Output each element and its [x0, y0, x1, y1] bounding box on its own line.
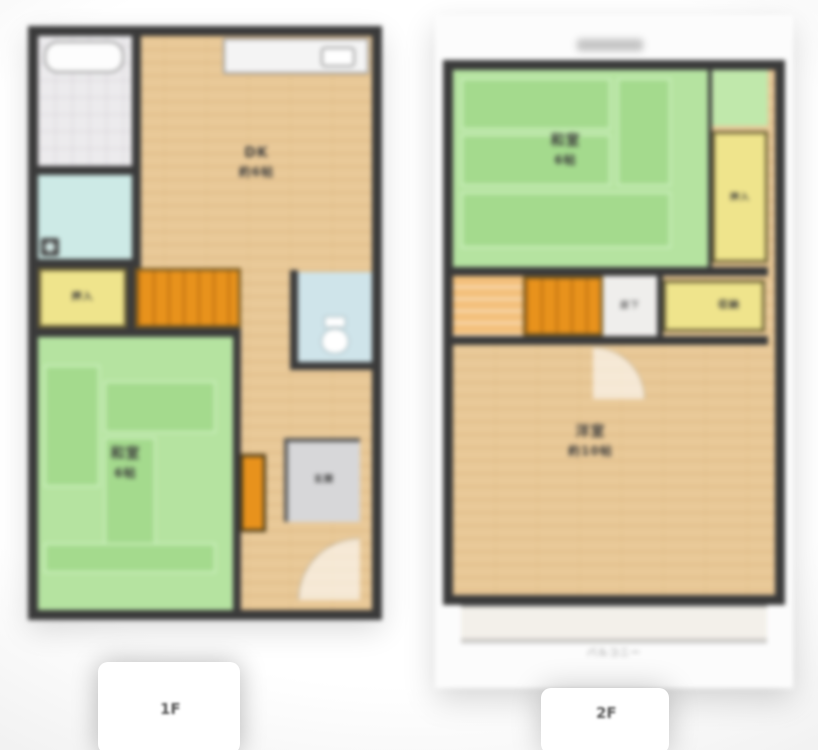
room-name: 和室: [111, 446, 141, 462]
stair-landing: [453, 276, 523, 336]
room-size: 6帖: [453, 152, 678, 169]
room-label-hall: 廊下: [603, 300, 657, 313]
room-size: 約10帖: [453, 443, 728, 460]
room-name: 押入: [730, 193, 750, 203]
bathtub-icon: [44, 41, 124, 73]
stairs-2f: [523, 276, 603, 336]
toilet-bowl: [321, 328, 349, 354]
room-washitsu-2f: 和室 6帖: [453, 70, 708, 267]
kitchen-counter: [223, 38, 369, 74]
tatami-nook: [712, 70, 768, 126]
room-label-oshiire: 押入: [41, 291, 124, 305]
room-label-washitsu: 和室 6帖: [38, 445, 213, 481]
room-hall: 廊下: [603, 276, 657, 336]
tatami-mat: [461, 78, 611, 130]
room-name: 玄関: [314, 475, 334, 485]
room-oshiire-1f: 押入: [38, 268, 127, 328]
room-dk: DK 約6帖: [141, 36, 372, 268]
room-washroom: [38, 175, 132, 259]
toilet-tank: [324, 316, 346, 328]
shoe-cabinet: [240, 454, 266, 532]
kitchen-sink-icon: [321, 47, 355, 67]
room-door-arc: [593, 347, 645, 399]
room-size: 6帖: [38, 465, 213, 482]
room-toilet: [298, 272, 372, 362]
room-name: 収納: [718, 300, 740, 311]
room-size: 約6帖: [141, 164, 372, 181]
wall: [290, 362, 372, 370]
room-label-genkan: 玄関: [288, 474, 360, 487]
wall: [38, 166, 132, 175]
room-label-dk: DK 約6帖: [141, 144, 372, 180]
floor-label-2f: 2F: [596, 704, 617, 722]
room-label-shuno: 収納: [696, 299, 762, 313]
toilet-icon: [321, 316, 349, 356]
room-label-washitsu-2f: 和室 6帖: [453, 132, 678, 168]
room-washitsu-1f: 和室 6帖: [38, 337, 233, 610]
balcony-label: バルコニー: [435, 647, 793, 661]
room-name: 和室: [551, 133, 581, 149]
tatami-mat: [461, 192, 671, 248]
room-name: 廊下: [620, 301, 640, 311]
room-yoshitsu: 洋室 約10帖: [453, 345, 768, 595]
floorplan-image: DK 約6帖 押入 和室 6帖: [0, 0, 818, 750]
wall: [453, 336, 768, 345]
room-bath: [38, 36, 132, 166]
washing-machine-icon: [41, 238, 59, 256]
room-label-oshiire-2f: 押入: [715, 192, 765, 205]
room-name: 洋室: [576, 424, 606, 440]
room-shuno: 収納: [663, 280, 765, 332]
floor-label-1f: 1F: [160, 700, 181, 718]
room-genkan: 玄関: [284, 438, 360, 522]
tatami-mat: [44, 543, 216, 573]
room-oshiire-2f: 押入: [712, 131, 768, 263]
room-label-yoshitsu: 洋室 約10帖: [453, 423, 728, 459]
wall: [38, 328, 241, 337]
room-name: バルコニー: [587, 648, 642, 659]
plan-2f: 和室 6帖 押入 廊下 収納: [435, 15, 793, 688]
plan-1f: DK 約6帖 押入 和室 6帖: [28, 26, 382, 620]
stairs-1f: [135, 268, 241, 328]
wall: [453, 267, 768, 276]
room-name: DK: [244, 145, 268, 161]
tatami-mat: [104, 381, 216, 433]
balcony: [461, 605, 767, 643]
room-name: 押入: [72, 292, 94, 303]
wall: [132, 36, 141, 268]
wall: [290, 270, 298, 366]
wall: [127, 268, 135, 328]
wall: [38, 259, 132, 268]
faint-annotation: [577, 39, 643, 51]
